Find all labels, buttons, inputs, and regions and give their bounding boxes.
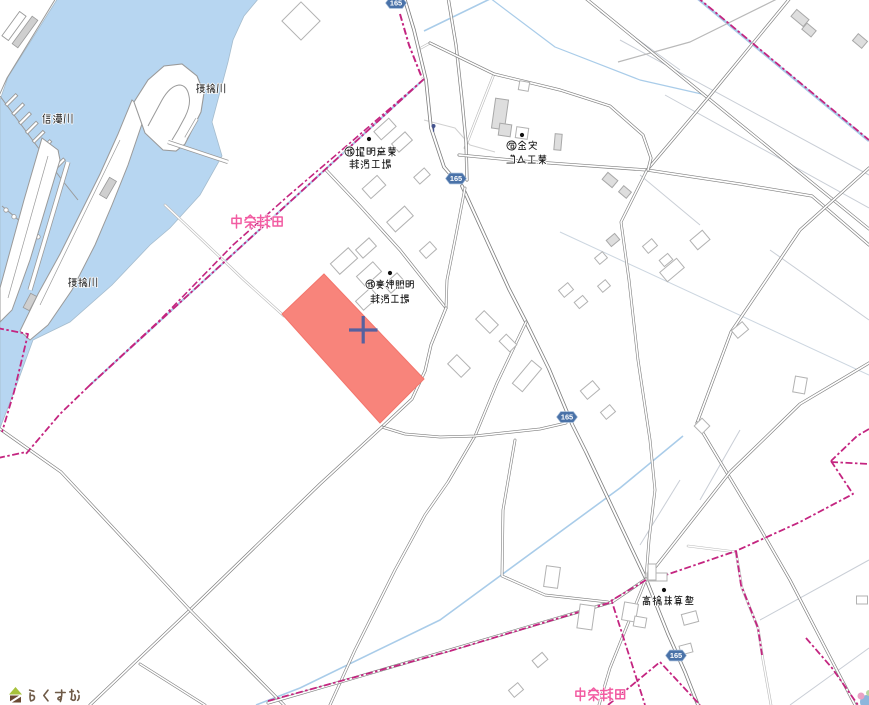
svg-text:165: 165	[670, 651, 682, 660]
svg-text:165: 165	[450, 174, 462, 183]
svg-text:165: 165	[561, 413, 573, 422]
svg-text:165: 165	[390, 0, 402, 8]
